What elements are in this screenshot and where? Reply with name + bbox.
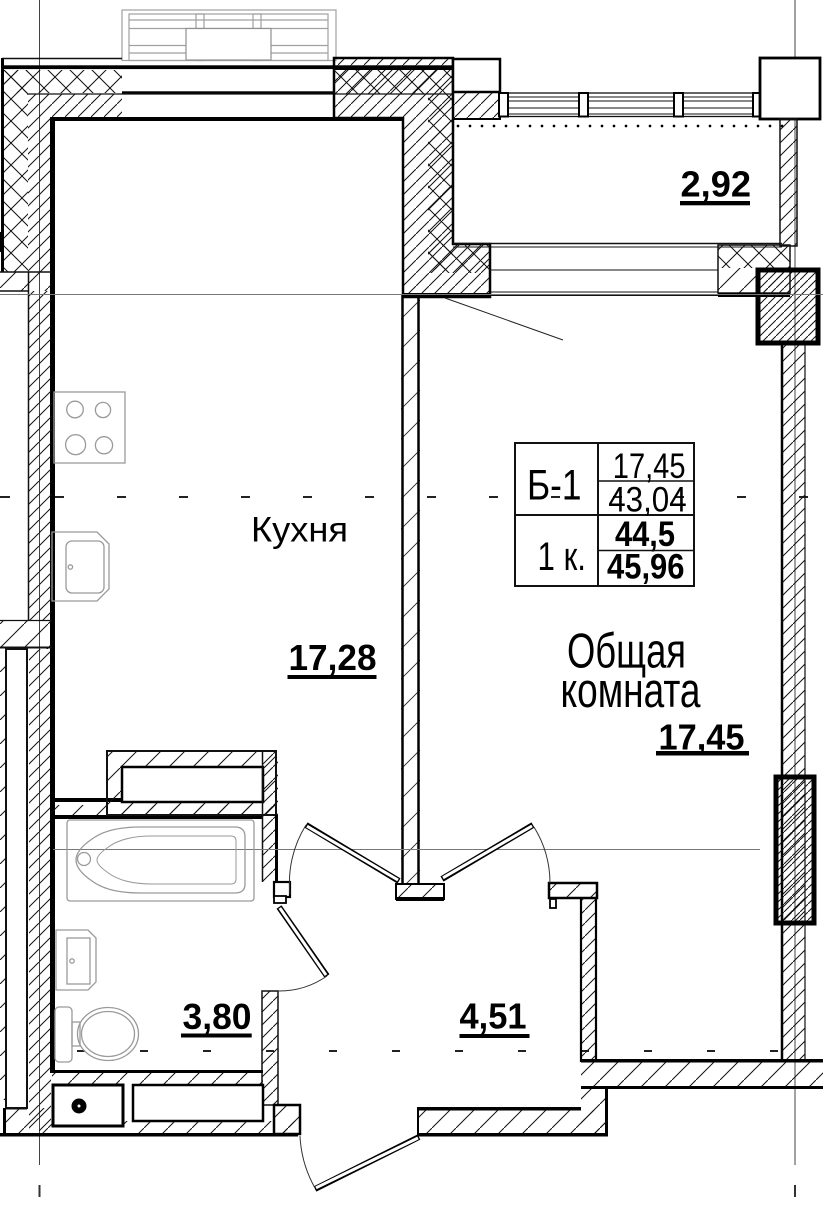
svg-text:45,96: 45,96 [607,548,685,587]
svg-text:4,51: 4,51 [460,996,527,1037]
svg-text:Кухня: Кухня [251,511,348,550]
svg-text:2,92: 2,92 [681,164,752,205]
svg-text:комната: комната [561,664,702,718]
svg-text:1 к.: 1 к. [538,535,587,579]
svg-text:Б-1: Б-1 [527,462,582,510]
svg-text:43,04: 43,04 [608,481,687,520]
svg-text:17,28: 17,28 [289,637,377,678]
svg-text:3,80: 3,80 [183,996,252,1037]
